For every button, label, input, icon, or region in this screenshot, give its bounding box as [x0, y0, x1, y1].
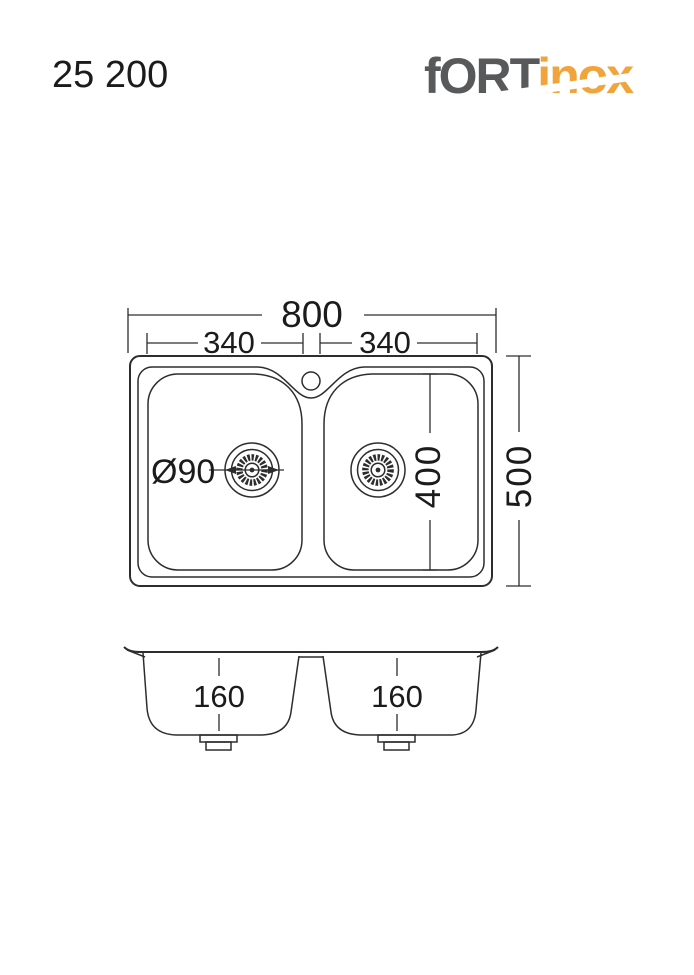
flange-line: [124, 647, 498, 652]
dim-left-bowl-width: 340: [147, 325, 303, 360]
right-drain-strainer: [351, 443, 405, 497]
dim-left-bowl-width-label: 340: [203, 325, 255, 360]
dim-right-bowl-width-label: 340: [359, 325, 411, 360]
dim-overall-width-label: 800: [281, 294, 343, 335]
dim-drain-diameter-label: Ø90: [151, 453, 215, 491]
top-view-drawing: Ø90 800 340 340 400: [128, 294, 539, 586]
dim-bowl-length: 400: [409, 374, 448, 570]
left-drain-stub: [200, 735, 237, 750]
dim-right-bowl-depth-label: 160: [371, 679, 423, 714]
dim-bowl-length-label: 400: [409, 444, 448, 508]
sink-technical-drawing: Ø90 800 340 340 400: [0, 0, 694, 975]
arrowhead-left: [225, 466, 236, 474]
section-view-drawing: 160 160: [124, 647, 498, 750]
dim-overall-depth: 500: [500, 356, 539, 586]
dim-right-bowl-width: 340: [320, 325, 477, 360]
spec-sheet-page: 25 200 fORTinox: [0, 0, 694, 975]
dim-overall-width: 800: [128, 294, 496, 353]
dim-left-bowl-depth-label: 160: [193, 679, 245, 714]
faucet-hole: [302, 372, 320, 390]
right-drain-stub: [378, 735, 415, 750]
right-bowl-outline: [324, 374, 478, 570]
dim-overall-depth-label: 500: [500, 444, 539, 508]
arrowhead-right: [268, 466, 279, 474]
